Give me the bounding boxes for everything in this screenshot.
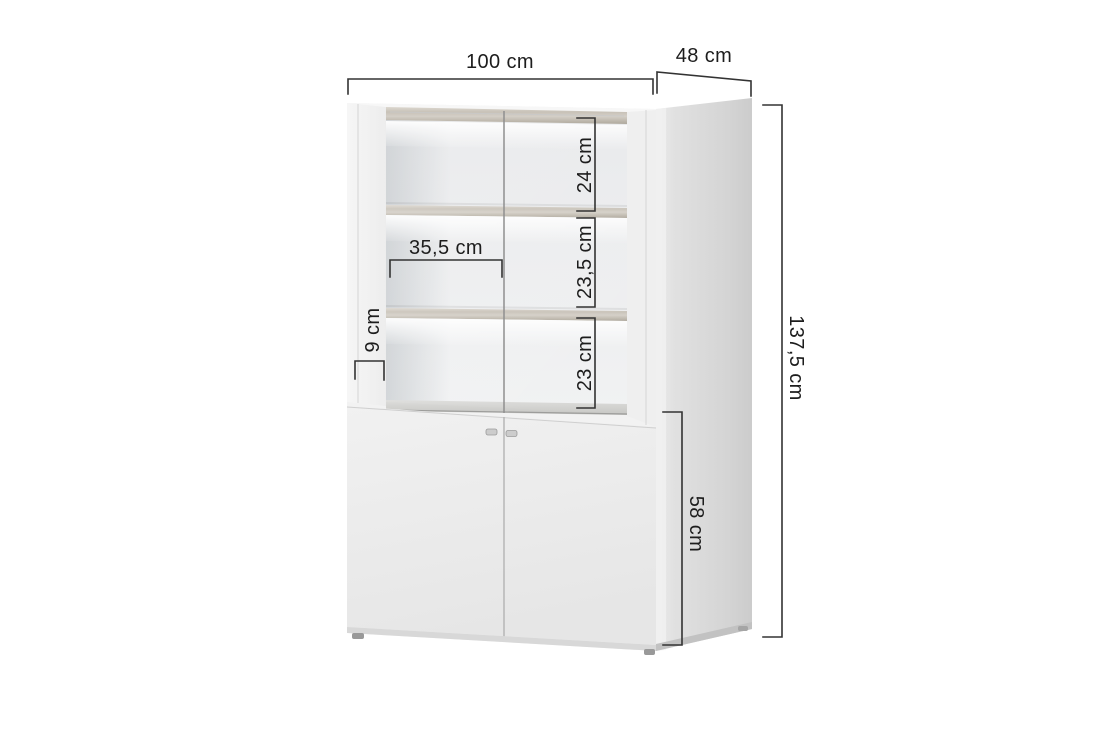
cabinet-dimension-drawing: 100 cm 48 cm 137,5 cm 24 cm 23,5 cm 23 c… xyxy=(0,0,1100,733)
cabinet-side-panel xyxy=(656,98,752,651)
middle-compartment-dimension-label: 23,5 cm xyxy=(574,225,596,299)
cabinet-foot-right xyxy=(644,649,655,655)
depth-dimension-line xyxy=(657,72,751,96)
cabinet-render xyxy=(347,98,752,655)
inner-width-dimension-label: 35,5 cm xyxy=(409,237,483,259)
right-frame-pillar xyxy=(627,110,656,427)
cabinet-side-edge-highlight xyxy=(656,108,666,651)
lower-compartment-dimension-label: 23 cm xyxy=(574,335,596,391)
base-height-dimension-label: 58 cm xyxy=(685,496,707,552)
width-dimension-label: 100 cm xyxy=(466,51,534,73)
left-door-handle xyxy=(486,429,497,435)
width-dimension-line xyxy=(348,79,653,94)
height-dimension-line xyxy=(763,105,782,637)
cabinet-foot-left xyxy=(352,633,364,639)
height-dimension-label: 137,5 cm xyxy=(785,315,807,400)
right-door-handle xyxy=(506,431,517,437)
cabinet-foot-back xyxy=(738,626,748,631)
side-frame-dimension-label: 9 cm xyxy=(362,308,384,353)
depth-dimension-label: 48 cm xyxy=(676,45,732,67)
lower-cabinet-doors xyxy=(347,406,656,645)
top-compartment-dimension-label: 24 cm xyxy=(574,137,596,193)
product-dimension-diagram: 100 cm 48 cm 137,5 cm 24 cm 23,5 cm 23 c… xyxy=(0,0,1100,733)
